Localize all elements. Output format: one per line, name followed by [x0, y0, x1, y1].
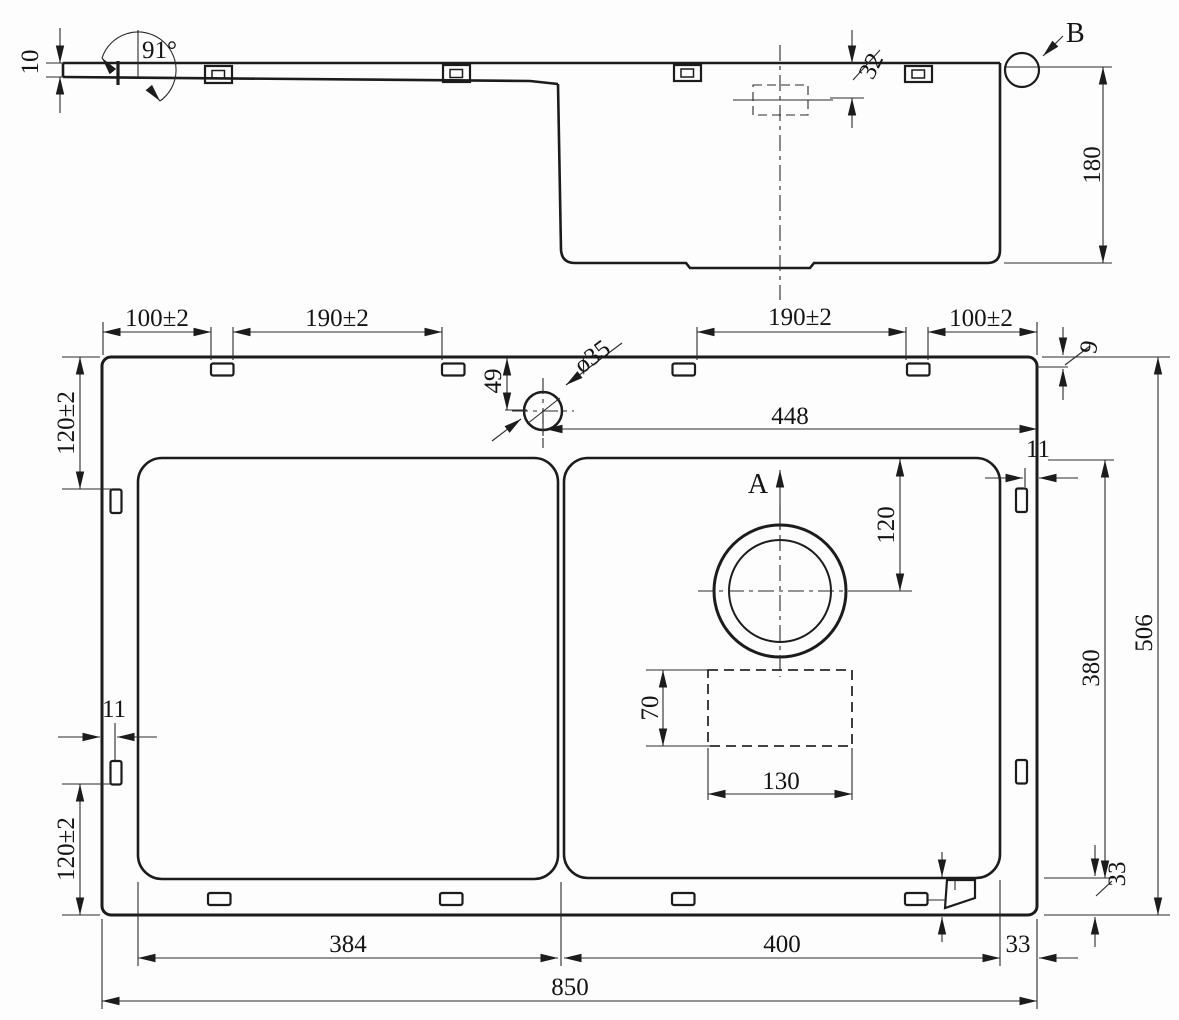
waste-box-hidden — [708, 670, 852, 746]
dim-angle: 91° — [142, 37, 177, 64]
left-dimension-11 — [58, 723, 157, 760]
dim-180: 180 — [1079, 146, 1106, 184]
plan-view-outline — [102, 357, 1037, 915]
dim-32: 32 — [854, 49, 889, 83]
dim-130: 130 — [762, 768, 800, 795]
sink-outer-rim — [102, 357, 1037, 915]
thickness-dimension-10 — [46, 28, 64, 113]
detail-b-label: B — [1066, 18, 1085, 49]
right-bowl — [564, 458, 1000, 878]
dim-11-right: 11 — [1026, 436, 1050, 463]
left-bowl — [138, 458, 558, 879]
dim-190-left: 190±2 — [305, 305, 369, 332]
dim-100-right: 100±2 — [949, 305, 1013, 332]
dim-11-left: 11 — [102, 696, 126, 723]
dim-120-bottom-left: 120±2 — [53, 817, 80, 881]
drain-hole — [698, 505, 862, 677]
bottom-dimension-rows — [102, 880, 1078, 1009]
tap-hole — [512, 378, 574, 448]
dim-9: 9 — [1075, 339, 1104, 356]
detail-b-callout — [1005, 36, 1063, 87]
dim-384: 384 — [329, 931, 367, 958]
section-a-label: A — [748, 469, 769, 500]
dim-120-drain: 120 — [873, 506, 900, 544]
drawing-canvas: 91° 10 32 180 B ø35 — [0, 0, 1179, 1020]
dim-448: 448 — [771, 403, 809, 430]
dimension-33-vertical — [1095, 845, 1112, 947]
dim-506: 506 — [1131, 614, 1158, 652]
dim-100-left: 100±2 — [125, 305, 189, 332]
dimension-9 — [1037, 327, 1090, 400]
sink-technical-drawing: 91° 10 32 180 B ø35 — [0, 0, 1179, 1020]
dim-380: 380 — [1078, 649, 1105, 687]
dim-49: 49 — [480, 369, 507, 394]
dim-850: 850 — [551, 974, 589, 1001]
dim-400: 400 — [763, 931, 801, 958]
dimension-49 — [505, 358, 527, 410]
dim-120-top-left: 120±2 — [53, 391, 80, 455]
profile-view-outline — [63, 61, 1000, 268]
dim-33-bottom: 33 — [1006, 931, 1031, 958]
dim-thickness: 10 — [17, 50, 44, 75]
dim-70: 70 — [637, 696, 664, 721]
dim-33-vertical: 33 — [1104, 862, 1131, 887]
dim-tap-diameter: ø35 — [569, 335, 615, 379]
dim-190-right: 190±2 — [768, 304, 832, 331]
top-dimension-row — [103, 322, 1037, 360]
plan-clips — [111, 364, 1028, 906]
corner-detail — [928, 852, 975, 942]
